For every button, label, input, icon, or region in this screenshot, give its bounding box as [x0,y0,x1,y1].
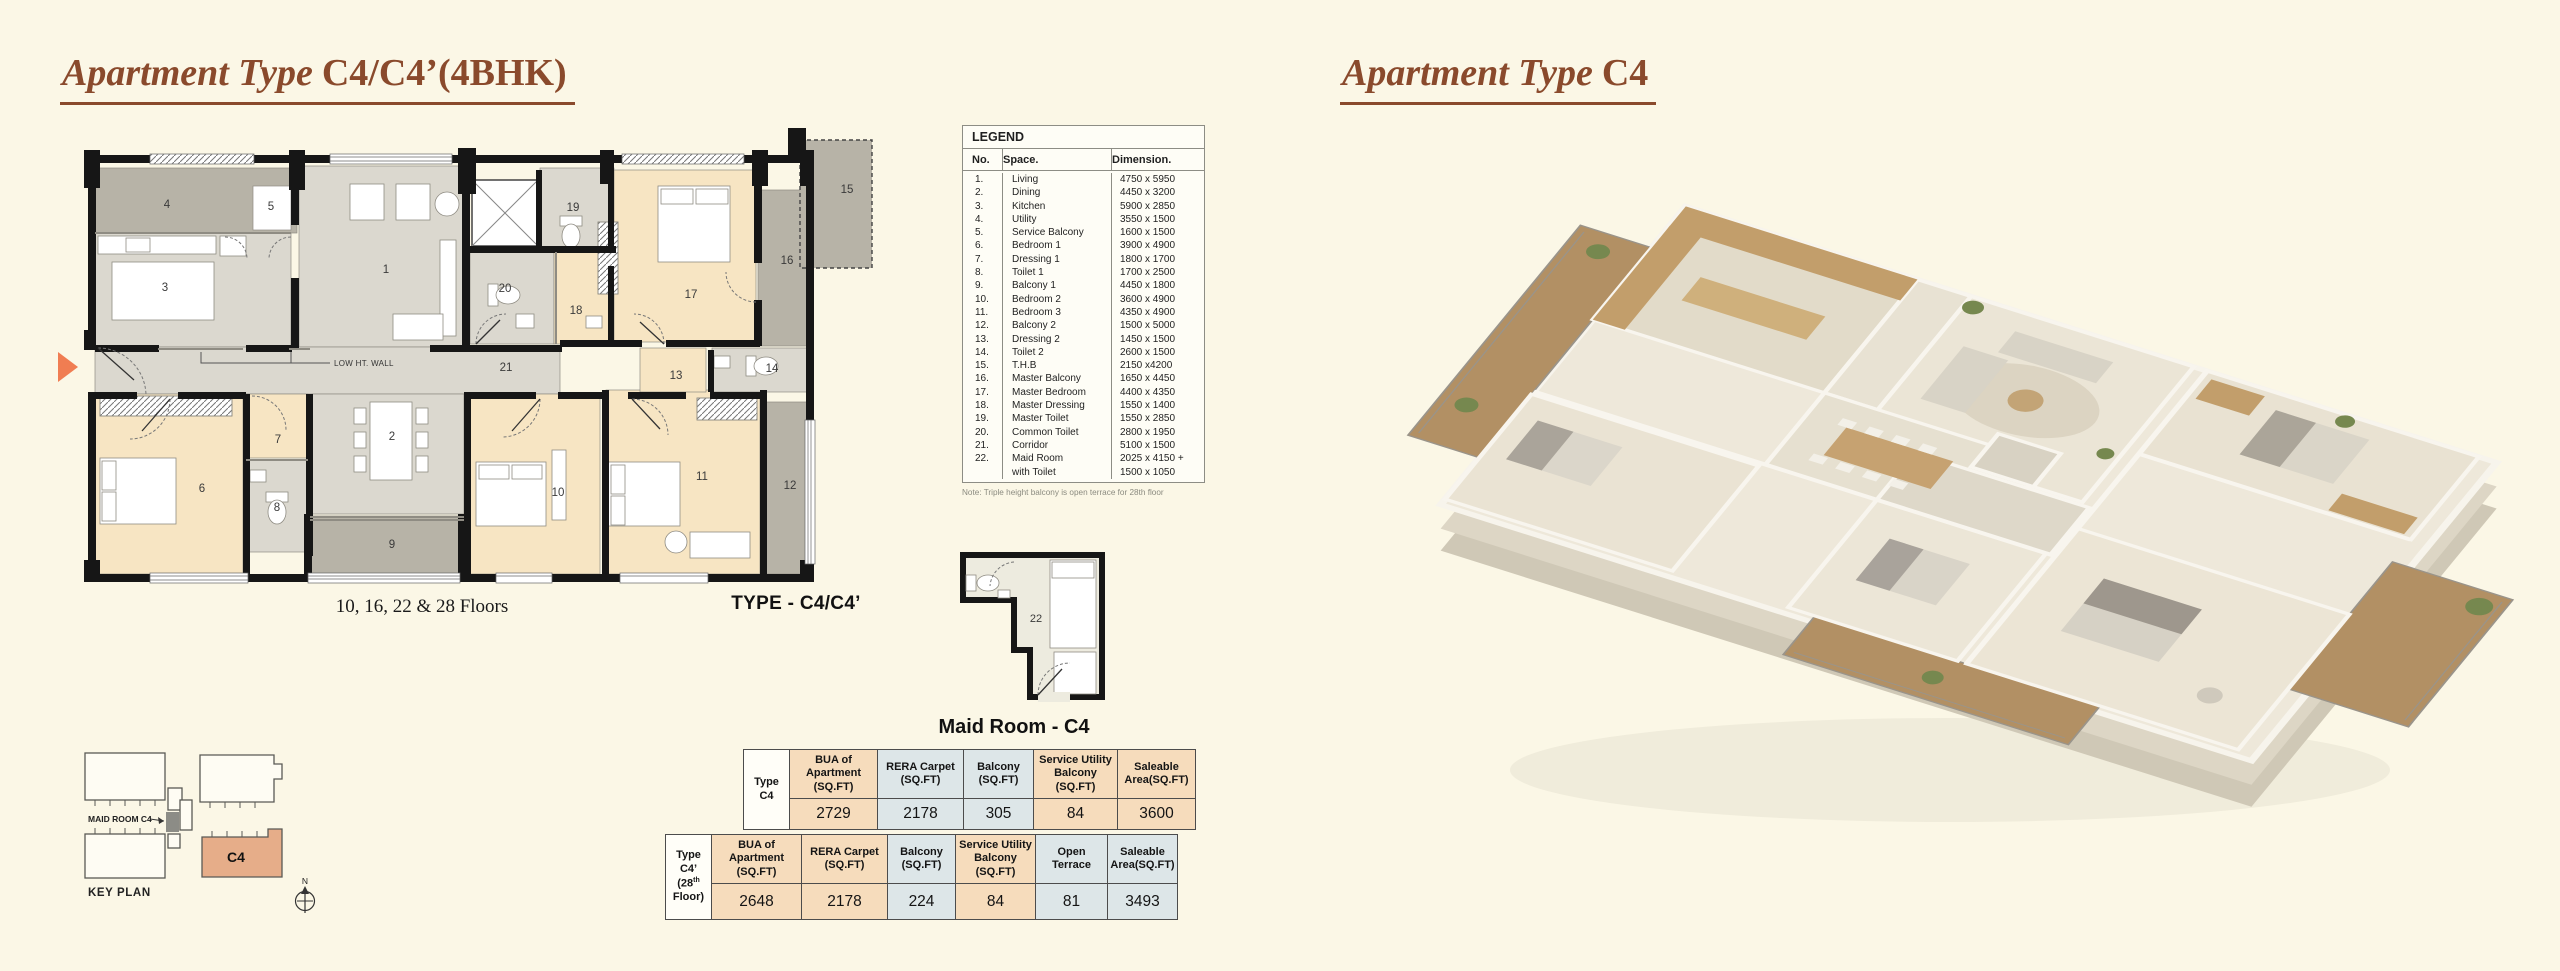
legend-cell: 3550 x 1500 [1112,213,1204,226]
plan-shaft [472,180,538,246]
low-wall-label: LOW HT. WALL [334,359,394,368]
legend-cell: 1600 x 1500 [1112,226,1204,239]
legend-cell: 4400 x 4350 [1112,386,1204,399]
legend-cell: 21. [963,439,1003,452]
room-number-label: 13 [670,370,683,382]
legend-cell: Dressing 1 [1003,253,1112,266]
room-number-label: 4 [164,199,171,211]
legend-cell: Master Balcony [1003,372,1112,385]
table-area-value: 2178 [802,884,888,920]
legend-cell: 2. [963,186,1003,199]
legend-cell: 4450 x 3200 [1112,186,1204,199]
legend-panel: LEGEND No. Space. Dimension. 1.Living475… [962,125,1205,483]
room-number-label: 20 [499,283,512,295]
legend-cell: Corridor [1003,439,1112,452]
legend-header-dimension: Dimension. [1112,149,1204,170]
legend-cell: 18. [963,399,1003,412]
legend-cell: 6. [963,239,1003,252]
table-col-header: OpenTerrace [1036,835,1108,884]
legend-cell: Utility [1003,213,1112,226]
maid-room-number: 22 [1030,613,1042,625]
legend-cell: 2800 x 1950 [1112,426,1204,439]
key-plan: MAID ROOM C4 C4 KEY PLAN N [55,745,355,925]
legend-cell: 15. [963,359,1003,372]
table-area-value: 224 [888,884,956,920]
legend-cell: Bedroom 1 [1003,239,1112,252]
legend-cell: 4450 x 1800 [1112,279,1204,292]
legend-cell: 5. [963,226,1003,239]
legend-cell: Toilet 2 [1003,346,1112,359]
table-col-header: Service UtilityBalcony(SQ.FT) [1034,750,1118,799]
right-title-code: C4 [1602,52,1648,94]
legend-cell: 11. [963,306,1003,319]
legend-cell: Living [1003,173,1112,186]
legend-cell: 3. [963,200,1003,213]
legend-cell: 9. [963,279,1003,292]
legend-cell: 13. [963,333,1003,346]
table-col-header: SaleableArea(SQ.FT) [1108,835,1178,884]
key-plan-maid-unit [166,812,179,832]
legend-cell: 1700 x 2500 [1112,266,1204,279]
legend-title: LEGEND [963,126,1204,149]
legend-cell: 8. [963,266,1003,279]
legend-cell: Bedroom 3 [1003,306,1112,319]
legend-cell: 5900 x 2850 [1112,200,1204,213]
room-number-label: 1 [383,264,389,276]
legend-cell: 1550 x 2850 [1112,412,1204,425]
room-number-label: 18 [570,305,583,317]
legend-cell: 12. [963,319,1003,332]
table-area-value: 3600 [1118,799,1196,830]
legend-cell: 1. [963,173,1003,186]
plan-type-label: TYPE - C4/C4’ [712,593,880,615]
table-area-value: 2648 [712,884,802,920]
legend-cell: Dining [1003,186,1112,199]
legend-header-no: No. [963,149,1003,170]
room-number-label: 21 [500,362,513,374]
legend-cell: 3600 x 4900 [1112,293,1204,306]
table-col-header: Service UtilityBalcony(SQ.FT) [956,835,1036,884]
table-col-header: SaleableArea(SQ.FT) [1118,750,1196,799]
left-title-code: C4/C4’(4BHK) [322,52,567,94]
legend-cell: 1500 x 5000 [1112,319,1204,332]
table-area-value: 84 [1034,799,1118,830]
legend-cell: 2025 x 4150 + [1112,452,1204,465]
iso-floorplan-render [1390,140,2550,840]
table-area-value: 84 [956,884,1036,920]
legend-cell: 3900 x 4900 [1112,239,1204,252]
table-row-header: TypeC4 [744,750,790,830]
table-col-header: RERA Carpet(SQ.FT) [802,835,888,884]
left-title-prefix: Apartment Type [62,52,313,94]
table-area-value: 305 [964,799,1034,830]
floors-label: 10, 16, 22 & 28 Floors [322,596,522,618]
floorplan-2d: LOW HT. WALL 123456789101112131415161718… [50,128,885,600]
compass-icon: N [296,876,315,913]
table-col-header: BUA ofApartment(SQ.FT) [712,835,802,884]
room-number-label: 5 [268,201,274,213]
legend-cell: Service Balcony [1003,226,1112,239]
legend-cell: with Toilet [1003,466,1112,479]
legend-cell: 7. [963,253,1003,266]
legend-cell: Bedroom 2 [1003,293,1112,306]
room-number-label: 12 [784,480,797,492]
key-plan-title: KEY PLAN [88,887,151,899]
room-number-label: 16 [781,255,794,267]
room-number-label: 7 [275,434,281,446]
right-title-prefix: Apartment Type [1342,52,1593,94]
legend-cell: Dressing 2 [1003,333,1112,346]
legend-cell: Common Toilet [1003,426,1112,439]
maid-room-plan: 22 [950,540,1120,712]
legend-cell: 1450 x 1500 [1112,333,1204,346]
legend-cell: Balcony 1 [1003,279,1112,292]
table-col-header: Balcony(SQ.FT) [888,835,956,884]
legend-cell: 4750 x 5950 [1112,173,1204,186]
table-area-value: 81 [1036,884,1108,920]
legend-rows: 1.Living4750 x 59502.Dining4450 x 32003.… [963,171,1204,482]
room-number-label: 17 [685,289,698,301]
legend-cell: 19. [963,412,1003,425]
left-page-title: Apartment TypeC4/C4’(4BHK) [60,51,575,105]
legend-cell: 2150 x4200 [1112,359,1204,372]
key-plan-unit-label: C4 [227,849,245,865]
legend-cell: Balcony 2 [1003,319,1112,332]
table-col-header: RERA Carpet(SQ.FT) [878,750,964,799]
legend-cell: 1800 x 1700 [1112,253,1204,266]
room-number-label: 2 [389,431,395,443]
legend-cell: 1500 x 1050 [1112,466,1204,479]
legend-cell: 22. [963,452,1003,465]
legend-cell: 10. [963,293,1003,306]
area-table-c4-28th: TypeC4’(28thFloor)BUA ofApartment(SQ.FT)… [665,834,1178,920]
table-area-value: 3493 [1108,884,1178,920]
legend-cell: Master Dressing [1003,399,1112,412]
legend-cell: 16. [963,372,1003,385]
legend-header-space: Space. [1003,149,1112,170]
legend-cell: 1650 x 4450 [1112,372,1204,385]
legend-cell: 2600 x 1500 [1112,346,1204,359]
legend-cell: Maid Room [1003,452,1112,465]
room-number-label: 10 [552,487,565,499]
legend-cell: 4350 x 4900 [1112,306,1204,319]
table-area-value: 2178 [878,799,964,830]
legend-cell: 1550 x 1400 [1112,399,1204,412]
legend-cell: Kitchen [1003,200,1112,213]
legend-cell: 14. [963,346,1003,359]
legend-cell: Toilet 1 [1003,266,1112,279]
room-number-label: 15 [841,184,854,196]
table-row-header: TypeC4’(28thFloor) [666,835,712,920]
legend-header-row: No. Space. Dimension. [963,149,1204,171]
room-number-label: 19 [567,202,580,214]
area-table-c4: TypeC4BUA ofApartment(SQ.FT)RERA Carpet(… [743,749,1196,830]
legend-note: Note: Triple height balcony is open terr… [962,488,1212,497]
legend-cell: Master Toilet [1003,412,1112,425]
brochure-page: Apartment TypeC4/C4’(4BHK) Apartment Typ… [0,0,2560,971]
compass-north-label: N [302,876,308,886]
room-number-label: 14 [766,363,779,375]
legend-cell: 17. [963,386,1003,399]
key-plan-maid-label: MAID ROOM C4 [88,814,152,824]
legend-cell: 20. [963,426,1003,439]
table-col-header: Balcony(SQ.FT) [964,750,1034,799]
maid-room-title: Maid Room - C4 [925,716,1103,739]
entry-arrow-icon [58,352,78,382]
table-col-header: BUA ofApartment(SQ.FT) [790,750,878,799]
table-area-value: 2729 [790,799,878,830]
room-number-label: 6 [199,483,205,495]
room-number-label: 11 [696,471,708,483]
legend-cell [963,466,1003,479]
right-page-title: Apartment TypeC4 [1340,51,1656,105]
legend-cell: Master Bedroom [1003,386,1112,399]
room-number-label: 3 [162,282,168,294]
legend-cell: T.H.B [1003,359,1112,372]
legend-cell: 4. [963,213,1003,226]
legend-cell: 5100 x 1500 [1112,439,1204,452]
room-number-label: 8 [274,502,280,514]
room-number-label: 9 [389,539,395,551]
